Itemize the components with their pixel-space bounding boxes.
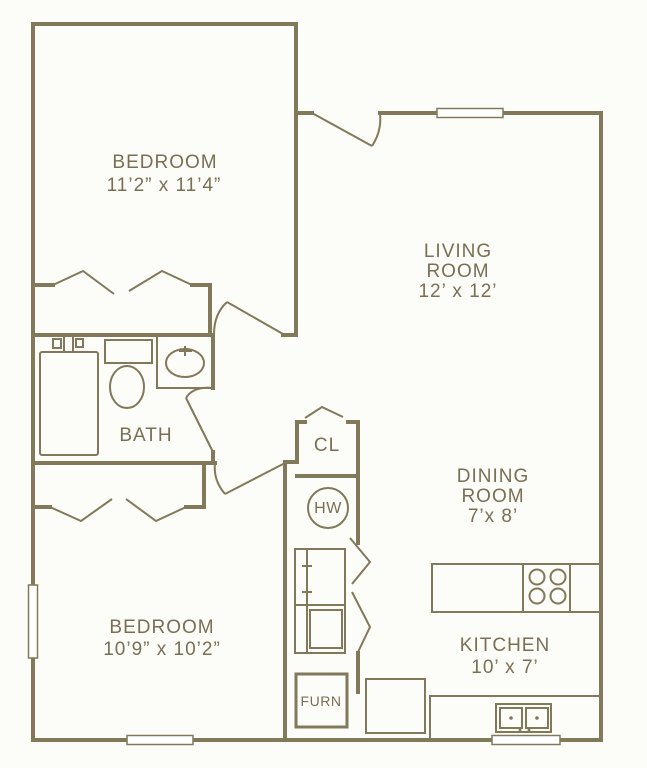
bedroom1-door [214,302,283,334]
hall-closet-bifold [305,407,343,418]
entry-door [312,113,380,146]
entry-door-swing-arc [372,113,380,146]
laundry-appliance-lower [295,605,345,653]
bath-sink-faucet [179,346,192,356]
bathtub-faucet-right [76,339,83,347]
washer-dryer-stack [295,549,345,653]
dining-room-label-line2: ROOM [461,486,524,508]
toilet-tank [105,340,152,363]
toilet-bowl [110,366,144,408]
floor-plan: BEDROOM 11’2” x 11’4” LIVING ROOM 12’ x … [0,0,647,768]
kitchen-window [492,736,560,745]
burner-top-left [530,570,545,585]
bedroom2-closet-bifold [50,499,186,521]
core-hall-wall [285,422,297,462]
kitchen-dims: 10’ x 7’ [471,657,539,679]
utility-fixtures [295,488,348,727]
bedroom2-door-leaf [225,463,285,494]
bedroom2-door [215,463,285,494]
bath-door-swing-arc [186,388,213,398]
bath-door-leaf [186,398,213,452]
dining-room-label-line1: DINING [457,466,530,488]
hall-closet-label: CL [314,435,340,457]
bathtub-faucet-left [53,339,61,348]
bathtub [40,352,98,455]
sink-faucet-dot-right [528,729,531,732]
sink-faucet-dot-left [519,729,522,732]
kitchen-label: KITCHEN [460,635,550,657]
laundry-appliance-lower-door [310,610,342,648]
bedroom1-closet-bifold [53,271,192,294]
kitchen-sink-counter [430,696,601,740]
laundry-closet-bifold [350,538,370,652]
entry-door-leaf [312,113,372,146]
furnace-label: FURN [301,693,342,709]
sink-drain-right [535,716,539,720]
bedroom2-label: BEDROOM [109,617,214,639]
bedroom1-label: BEDROOM [112,152,217,174]
bedroom1-door-swing-arc [214,302,227,334]
burner-top-right [551,570,566,585]
kitchen-top-counter [432,564,601,612]
water-heater-label: HW [314,500,342,518]
laundry-appliance-upper-divider [302,549,312,605]
bedroom1-dims: 11’2” x 11’4” [107,175,222,197]
living-room-window [437,109,503,118]
living-room-dims: 12’ x 12’ [418,281,497,303]
bath-label: BATH [119,425,172,447]
living-room-label-line1: LIVING [424,241,492,263]
bedroom2-left-window [29,585,38,658]
bedroom1-door-leaf [227,302,283,334]
bath-door [186,388,213,452]
refrigerator [366,679,425,733]
burner-bottom-right [551,589,566,604]
bedroom2-bottom-window [127,736,193,745]
bedroom2-dims: 10’9” x 10’2” [103,639,221,661]
living-room-label-line2: ROOM [426,261,489,283]
burner-bottom-left [530,589,545,604]
sink-drain-left [509,716,513,720]
bedroom2-closet-walls [33,463,204,507]
bathtub-faucet-center [64,335,73,352]
stove-burners [530,570,566,604]
dining-room-dims: 7’x 8’ [468,506,518,528]
bedroom1-closet-walls [33,285,210,335]
bedroom2-door-swing-arc [215,463,225,494]
bedroom2-walls [33,463,204,507]
laundry-appliance-upper [295,549,345,605]
kitchen-sink [496,704,551,732]
